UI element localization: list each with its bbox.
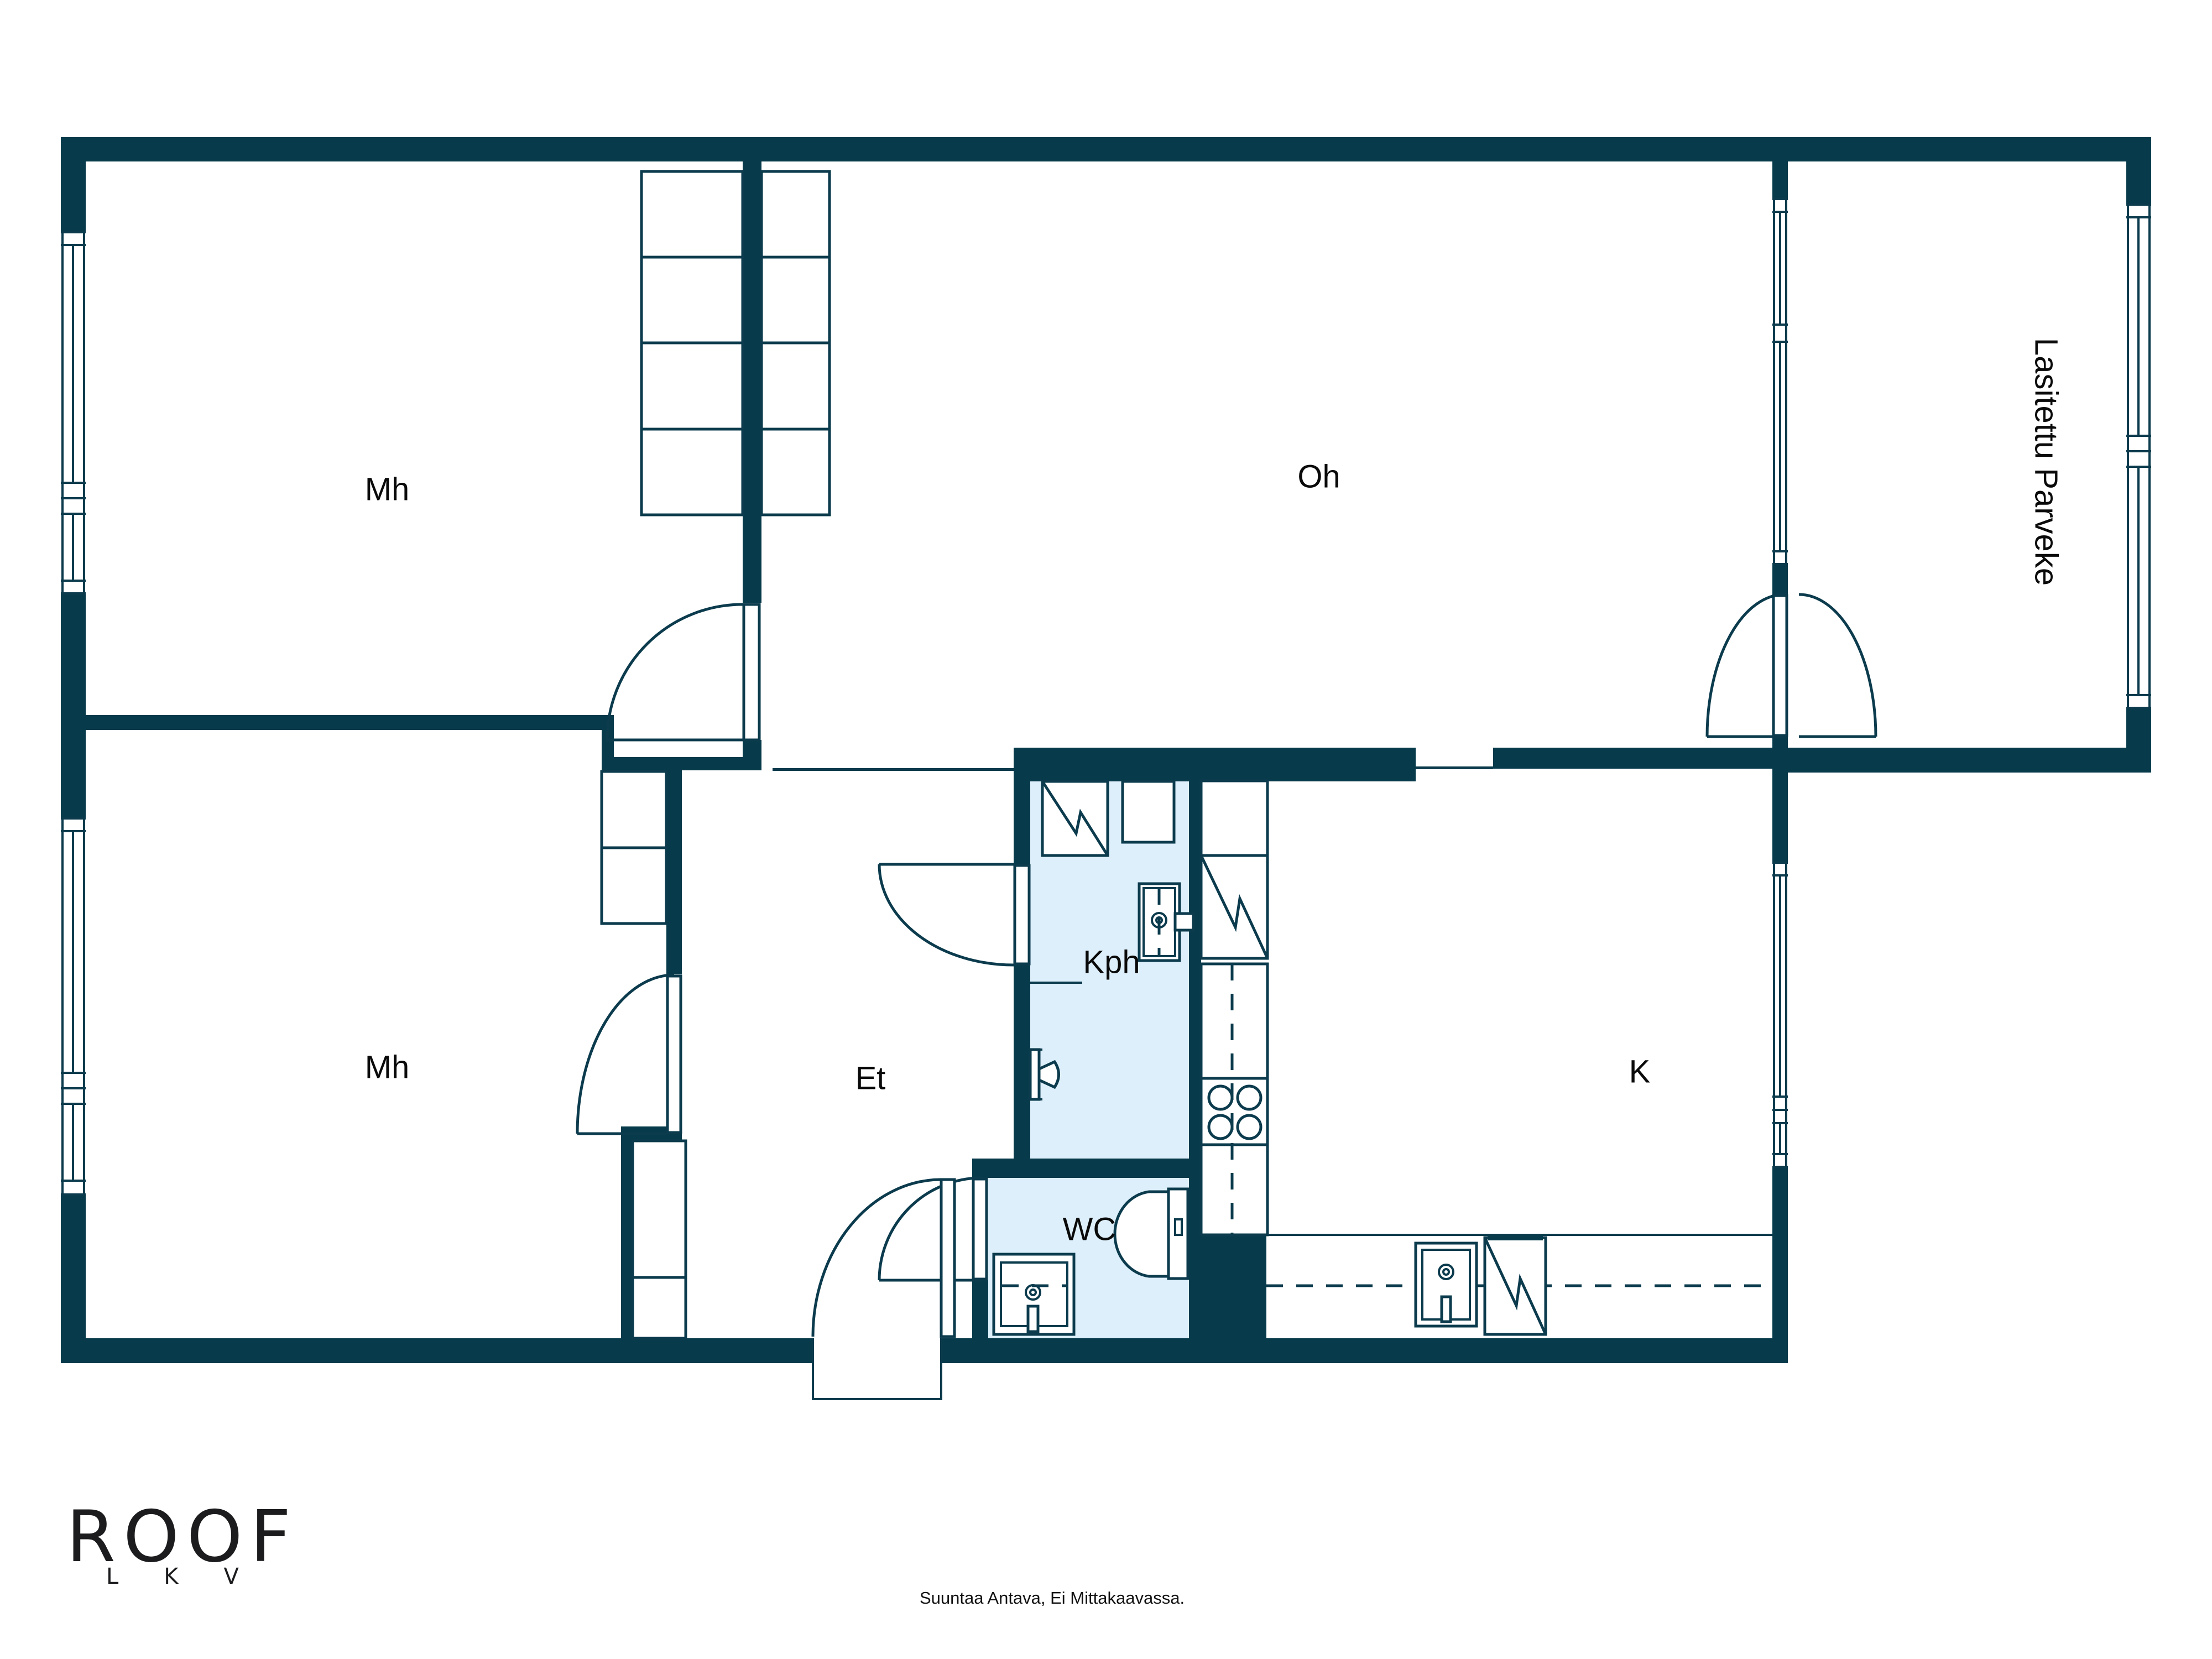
door-balcony xyxy=(1707,594,1876,737)
window-mh-top xyxy=(61,232,86,593)
dishwasher-icon xyxy=(1485,1235,1546,1334)
floor-plan: Mh Oh Mh Et Kph WC K Lasitettu Parveke R… xyxy=(0,0,2212,1659)
k-passage-line xyxy=(1416,766,1493,769)
interior-walls xyxy=(86,161,1788,1338)
window-kitchen-right xyxy=(1772,863,1788,1167)
kitchen-cabinet xyxy=(1201,781,1267,855)
roof-logo-lkv: LKV xyxy=(106,1564,284,1589)
door-mh-bottom xyxy=(577,975,681,1134)
washing-machine-icon xyxy=(1042,781,1108,855)
floor-plan-drawing xyxy=(0,0,2212,1659)
room-label-mh-bottom: Mh xyxy=(365,1049,410,1086)
shaft-et xyxy=(633,1141,686,1338)
room-label-k: K xyxy=(1629,1053,1651,1091)
closets xyxy=(602,171,830,1338)
door-wc xyxy=(879,1178,987,1280)
kitchen-counter-tall xyxy=(1201,964,1267,1078)
fridge-icon xyxy=(1201,855,1267,958)
closet-mh-bottom xyxy=(602,771,666,924)
room-label-kph: Kph xyxy=(1083,944,1140,981)
room-label-oh: Oh xyxy=(1297,458,1340,495)
door-kph xyxy=(879,864,1029,965)
door-mh-top xyxy=(607,604,759,740)
wc-sink-icon xyxy=(994,1254,1074,1334)
shower-square-icon xyxy=(1123,781,1174,842)
kitchen-base-cabinet xyxy=(1201,1145,1267,1235)
toilet-icon xyxy=(1115,1189,1188,1279)
window-balcony-left xyxy=(1772,199,1788,564)
window-mh-bottom xyxy=(61,818,86,1194)
kitchen-sink-icon xyxy=(1416,1243,1477,1326)
room-label-balcony: Lasitettu Parveke xyxy=(2028,338,2065,586)
kitchen-fixtures xyxy=(1201,781,1772,1334)
room-label-et: Et xyxy=(855,1060,886,1097)
door-entrance xyxy=(813,1180,954,1399)
room-label-mh-top: Mh xyxy=(365,471,410,508)
closet-mh-top xyxy=(641,171,743,515)
disclaimer-text: Suuntaa Antava, Ei Mittakaavassa. xyxy=(920,1588,1185,1608)
stove-icon xyxy=(1201,1078,1267,1145)
room-label-wc: WC xyxy=(1063,1211,1117,1248)
closet-oh xyxy=(761,171,830,515)
et-oh-boundary-line xyxy=(773,768,1014,771)
window-balcony-right xyxy=(2126,205,2151,708)
